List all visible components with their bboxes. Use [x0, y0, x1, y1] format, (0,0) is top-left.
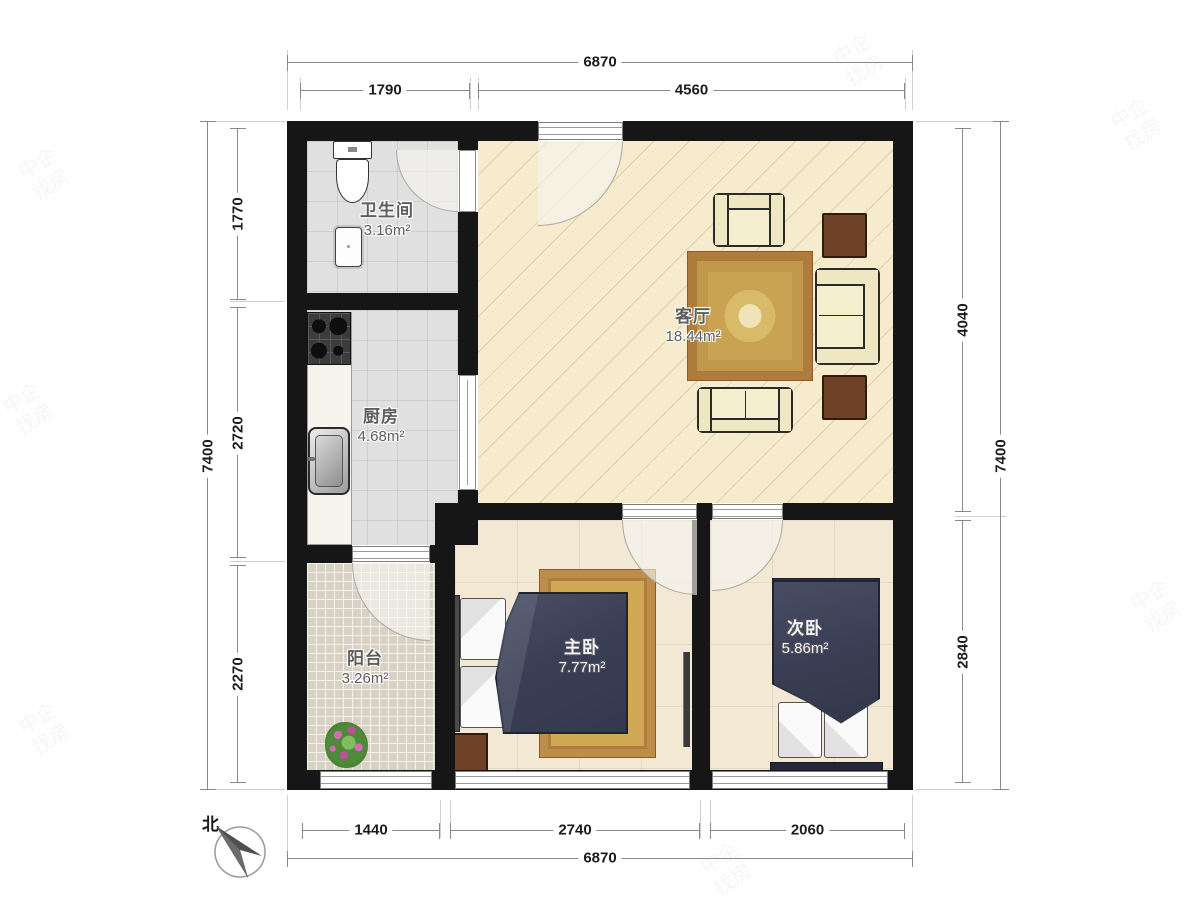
sofa-backrest [863, 270, 878, 363]
extension-line [230, 561, 285, 562]
dim-left-overall: 7400 [207, 121, 208, 790]
sofa2-cushion-divider [745, 391, 746, 418]
dim-right-overall-label: 7400 [993, 434, 1010, 477]
kitchen-door-leaf [459, 375, 476, 490]
dim-top-overall-label: 6870 [578, 54, 621, 71]
dim-bottom-seg2-label: 2740 [553, 822, 596, 839]
bathroom-area: 3.16m² [327, 221, 447, 240]
living-room-area: 18.44m² [633, 327, 753, 346]
extension-line [700, 800, 701, 838]
wall-bath-kitchen [287, 293, 478, 310]
second-bedroom-name: 次卧 [745, 619, 865, 639]
armchair-arm-left [715, 195, 729, 245]
dim-left-seg1: 1770 [237, 128, 238, 300]
dim-left-seg3-label: 2270 [230, 652, 247, 695]
sofa-arm-top [817, 270, 865, 286]
watermark: 中企找房 [823, 25, 895, 96]
gas-stove [307, 312, 351, 365]
sofa-cushion-divider [819, 315, 863, 316]
sofa2-arm-right [778, 389, 791, 431]
dim-bottom-seg2: 2740 [450, 830, 700, 831]
balcony-label: 阳台 3.26m² [305, 649, 425, 688]
compass: 北 [190, 800, 280, 890]
dim-top-seg1-label: 1790 [363, 82, 406, 99]
floorplan-page: { "plan": { "rooms": { "bathroom": {"nam… [0, 0, 1200, 900]
second-bedroom-label: 次卧 5.86m² [745, 619, 865, 658]
balcony-window [320, 771, 432, 789]
dim-right-overall: 7400 [1000, 121, 1001, 790]
master-door-leaf [622, 504, 697, 519]
kitchen-door-line [467, 380, 468, 485]
entry-door-leaf [538, 122, 623, 140]
second-bed-pillow-1 [778, 702, 822, 758]
extension-line [440, 800, 441, 838]
watermark: 中企找房 [691, 834, 763, 905]
balcony-name: 阳台 [305, 649, 425, 669]
compass-arrow-icon [190, 800, 280, 890]
wall-balcony-top-left [287, 545, 352, 563]
dim-bottom-overall-label: 6870 [578, 850, 621, 867]
master-bedroom-name: 主卧 [522, 638, 642, 658]
dim-left-overall-label: 7400 [200, 434, 217, 477]
kitchen-label: 厨房 4.68m² [321, 407, 441, 446]
wall-outer-left [287, 121, 307, 790]
kitchen-area: 4.68m² [321, 427, 441, 446]
wall-outer-right [893, 121, 913, 790]
sofa-two-seat [697, 387, 793, 433]
dim-left-seg2-label: 2720 [230, 411, 247, 454]
sofa-three-seat [815, 268, 880, 365]
master-bed-pillow-1 [460, 598, 506, 660]
armchair [713, 193, 785, 247]
wall-balcony-top-right [430, 545, 455, 563]
second-bedroom-window [712, 771, 888, 789]
extension-line [905, 78, 906, 110]
extension-line [230, 301, 285, 302]
nightstand [450, 733, 488, 773]
dim-bottom-seg3-label: 2060 [786, 822, 829, 839]
dim-right-seg1-label: 4040 [955, 298, 972, 341]
watermark: 中企找房 [0, 374, 65, 445]
second-bedroom-area: 5.86m² [745, 639, 865, 658]
washbasin-drain [347, 245, 350, 248]
balcony-door-leaf [352, 546, 430, 562]
potted-plant [325, 722, 368, 768]
toilet-button [348, 147, 357, 152]
watermark: 中企找房 [1121, 571, 1193, 642]
dim-left-seg3: 2270 [237, 565, 238, 783]
watermark: 中企找房 [1101, 89, 1173, 160]
bathroom-door-leaf [459, 150, 476, 212]
armchair-arm-right [769, 195, 783, 245]
side-table-bottom [822, 375, 867, 420]
dim-top-overall: 6870 [287, 62, 913, 63]
bathroom-label: 卫生间 3.16m² [327, 201, 447, 240]
dim-bottom-seg1: 1440 [302, 830, 440, 831]
kitchen-name: 厨房 [321, 407, 441, 427]
watermark: 中企找房 [9, 694, 81, 765]
dim-right-seg2-label: 2840 [955, 630, 972, 673]
bathroom-name: 卫生间 [327, 201, 447, 221]
extension-line [470, 78, 471, 110]
balcony-area: 3.26m² [305, 669, 425, 688]
watermark: 中企找房 [9, 139, 81, 210]
master-bedroom-window [455, 771, 690, 789]
sofa-arm-bottom [817, 347, 865, 363]
dim-top-seg1: 1790 [300, 90, 470, 91]
master-bedroom-label: 主卧 7.77m² [522, 638, 642, 677]
dim-bottom-seg1-label: 1440 [349, 822, 392, 839]
dim-left-seg2: 2720 [237, 307, 238, 558]
dim-right-seg2: 2840 [962, 520, 963, 783]
master-bedroom-area: 7.77m² [522, 658, 642, 677]
floor-plan: 卫生间 3.16m² 厨房 4.68m² 客厅 18.44m² 主卧 7.77m… [287, 121, 913, 790]
living-room-label: 客厅 18.44m² [633, 307, 753, 346]
extension-line [955, 516, 1006, 517]
sofa2-arm-left [699, 389, 712, 431]
second-door-leaf [712, 504, 783, 519]
toilet-tank [333, 141, 372, 159]
dim-bottom-seg3: 2060 [710, 830, 905, 831]
dim-right-seg1: 4040 [962, 128, 963, 512]
dim-top-seg2: 4560 [478, 90, 905, 91]
side-table-top [822, 213, 867, 258]
living-room-name: 客厅 [633, 307, 753, 327]
dim-left-seg1-label: 1770 [230, 192, 247, 235]
dim-top-seg2-label: 4560 [670, 82, 713, 99]
dim-bottom-overall: 6870 [287, 858, 913, 859]
tv-on-wall [683, 652, 690, 747]
